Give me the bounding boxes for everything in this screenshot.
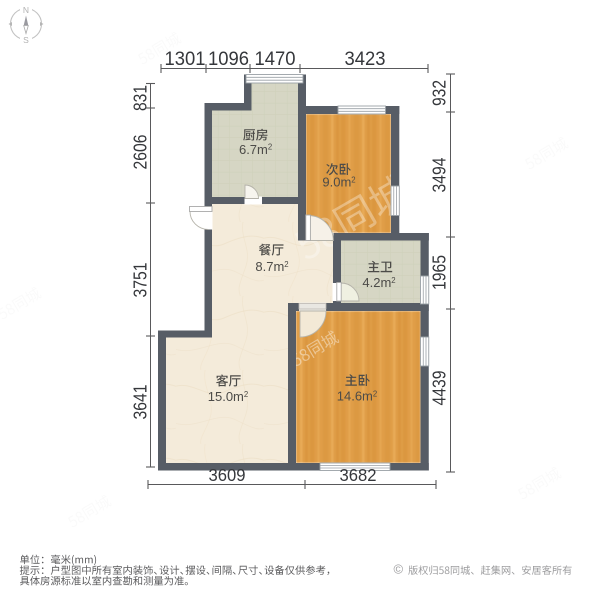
svg-text:8.7m2: 8.7m2	[255, 259, 288, 274]
svg-text:3641: 3641	[131, 385, 151, 420]
svg-text:1965: 1965	[430, 255, 450, 290]
svg-text:3751: 3751	[131, 263, 151, 298]
svg-text:©: ©	[394, 562, 404, 577]
svg-text:15.0m2: 15.0m2	[208, 389, 248, 404]
svg-text:1301: 1301	[165, 48, 206, 70]
svg-text:N: N	[23, 5, 29, 15]
svg-text:6.7m2: 6.7m2	[239, 142, 272, 157]
svg-text:831: 831	[131, 85, 151, 111]
svg-text:2606: 2606	[131, 135, 151, 170]
svg-text:S: S	[23, 35, 29, 45]
svg-text:3494: 3494	[430, 158, 450, 193]
svg-text:9.0m2: 9.0m2	[322, 175, 355, 190]
svg-text:3609: 3609	[209, 465, 246, 485]
svg-text:1470: 1470	[255, 48, 296, 70]
svg-text:4439: 4439	[430, 371, 450, 406]
svg-text:4.2m2: 4.2m2	[362, 275, 395, 290]
svg-text:3682: 3682	[340, 465, 377, 485]
svg-text:1096: 1096	[208, 48, 249, 70]
svg-text:3423: 3423	[345, 48, 386, 70]
svg-text:932: 932	[430, 80, 450, 106]
svg-text:14.6m2: 14.6m2	[337, 389, 377, 404]
